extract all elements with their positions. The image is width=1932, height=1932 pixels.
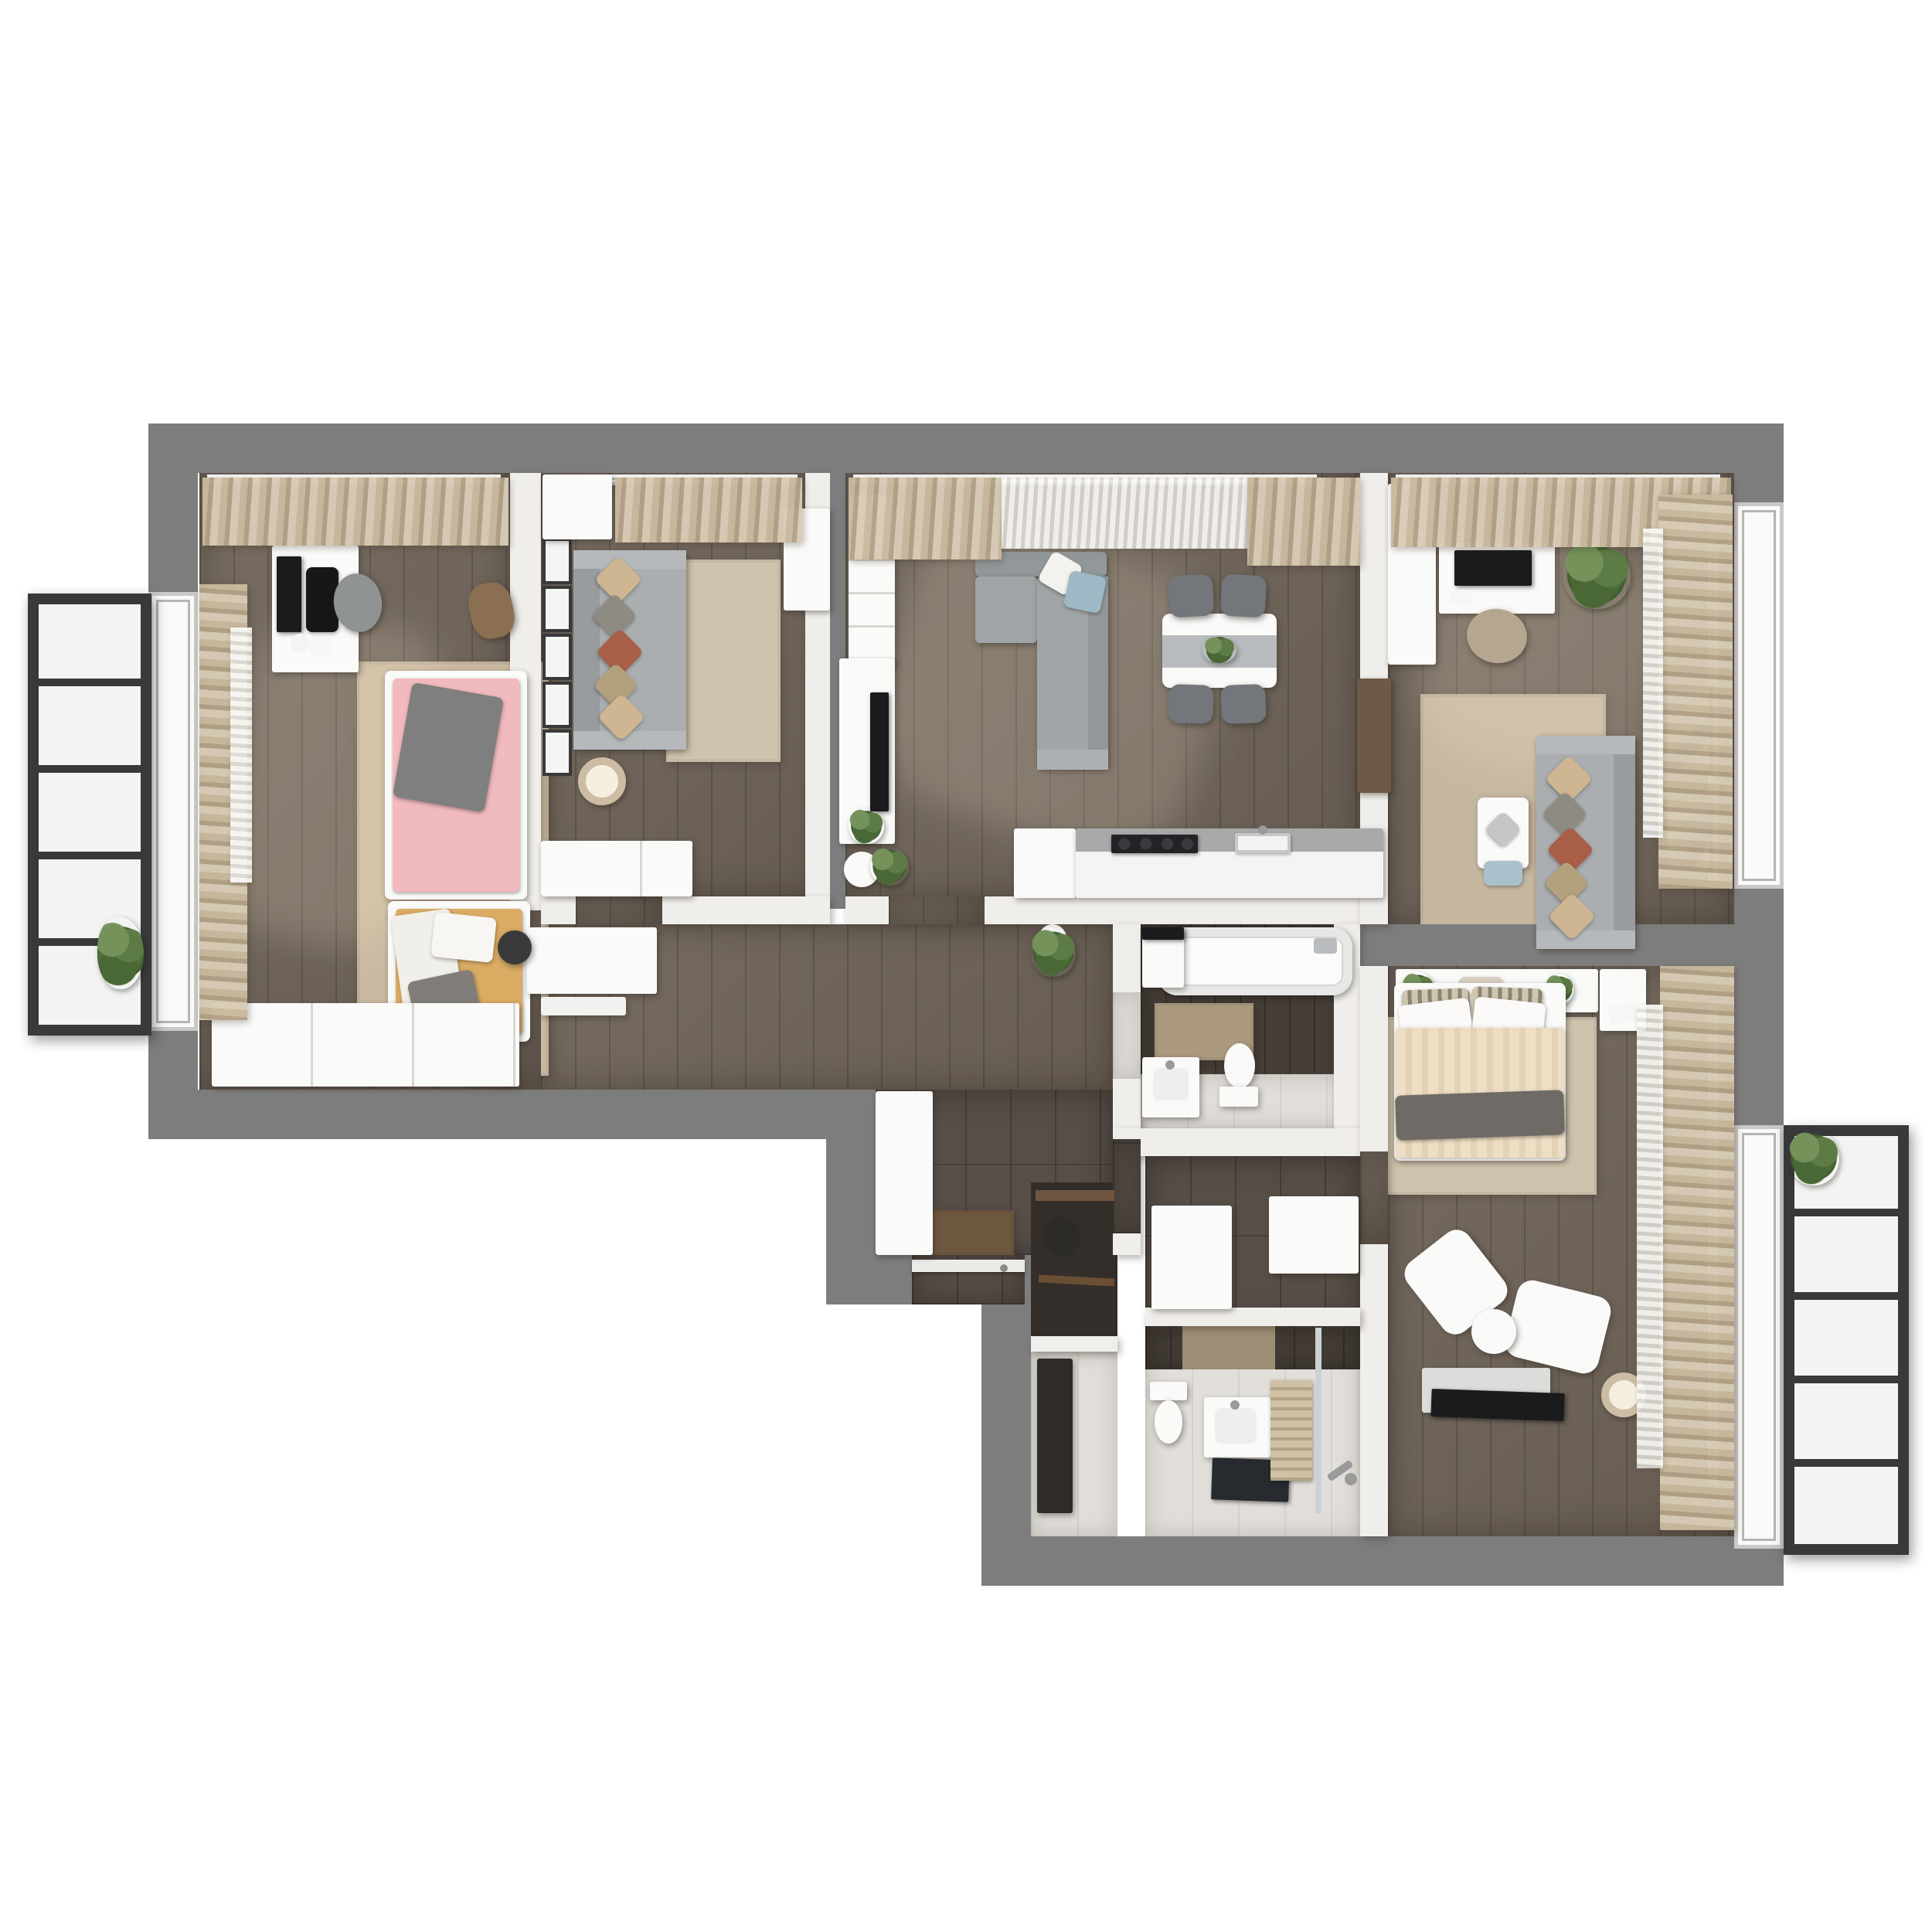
side-table-round xyxy=(1471,1309,1516,1354)
curtain-top-living-right xyxy=(1247,478,1360,566)
throw-blanket xyxy=(1395,1090,1565,1141)
picture-frame-1 xyxy=(546,541,569,581)
vanity-stool xyxy=(498,930,532,964)
bed-pink-blanket xyxy=(393,682,504,813)
door-living-study xyxy=(1357,679,1391,793)
sheer-left-bedroom xyxy=(230,628,252,883)
plant-balcony-left xyxy=(97,917,144,989)
plant-balcony-right xyxy=(1788,1130,1839,1185)
sofa-study-back xyxy=(1614,736,1635,949)
tv-living xyxy=(870,692,889,811)
washbasin-main-faucet xyxy=(1165,1060,1175,1070)
kitchen-faucet xyxy=(1258,825,1267,835)
curtain-top-bedroom-left xyxy=(202,478,509,546)
entry-door-handle xyxy=(1000,1264,1008,1272)
picture-frame-4 xyxy=(546,685,569,725)
balcony-right-mullion-3 xyxy=(1794,1376,1898,1383)
toilet-main-tank xyxy=(1219,1087,1258,1107)
utility-tall-cabinet xyxy=(1037,1359,1073,1513)
kitchen-sink xyxy=(1235,833,1291,853)
wall-outer-bottom-left xyxy=(148,1090,876,1139)
dining-chair-4 xyxy=(1220,684,1267,724)
shelf-blue-study xyxy=(1484,861,1522,886)
sofa-second-room-arm-bottom xyxy=(573,731,686,750)
desk-lamp xyxy=(291,634,309,652)
entry-door-leaf xyxy=(912,1260,1025,1272)
window-right-study xyxy=(1734,502,1784,889)
bed-ochre-pillow xyxy=(430,912,497,963)
sofa-living-arm-bottom xyxy=(1037,750,1108,770)
plant-hall xyxy=(1031,927,1076,977)
door-gap-main-bathroom xyxy=(1113,992,1141,1079)
vanity-second-faucet xyxy=(1230,1400,1240,1410)
plant-tv-console xyxy=(849,808,884,844)
door-gap-living-passage xyxy=(889,896,985,924)
bathtub-faucet xyxy=(1314,938,1337,954)
door-gap-second-room xyxy=(576,896,662,924)
towel-radiator xyxy=(1270,1380,1312,1481)
window-right-balcony xyxy=(1734,1125,1784,1549)
plant-living-floor xyxy=(870,847,909,886)
closet-second-room-top xyxy=(543,474,612,539)
tv-bedroom xyxy=(1430,1389,1564,1421)
balcony-right-mullion-1 xyxy=(1794,1209,1898,1216)
dining-chair-3 xyxy=(1168,684,1214,724)
sofa-living-chaise xyxy=(975,577,1037,643)
toilet-second-bowl xyxy=(1155,1400,1182,1444)
picture-frame-3 xyxy=(546,637,569,677)
balcony-left-mullion-3 xyxy=(39,852,141,859)
wall-outer-top xyxy=(148,423,1784,473)
floor-second-bathroom-beige-patch xyxy=(1182,1326,1275,1369)
vanity-second-bowl xyxy=(1215,1408,1257,1444)
storage-bench-1 xyxy=(1151,1206,1232,1309)
wall-dressing-divider xyxy=(1145,1308,1360,1326)
dining-flowers xyxy=(1202,637,1236,663)
shower-head xyxy=(1345,1473,1357,1485)
balcony-left-mullion-2 xyxy=(39,765,141,773)
storage-bench-2 xyxy=(1269,1196,1359,1274)
wall-main-vertical xyxy=(1360,966,1388,1536)
sheer-top-living xyxy=(1002,478,1247,549)
picture-frame-5 xyxy=(546,733,569,773)
door-gap-bedroom-right xyxy=(1360,1151,1388,1244)
coat-niche-shelf xyxy=(1036,1190,1114,1201)
shower-glass xyxy=(1315,1328,1321,1513)
picture-frame-2 xyxy=(546,589,569,629)
balcony-right xyxy=(1784,1125,1909,1555)
balcony-right-mullion-4 xyxy=(1794,1459,1898,1467)
wall-outer-bottom xyxy=(981,1536,1784,1586)
wall-main-bath-bottom xyxy=(1113,1128,1360,1156)
window-left-balcony xyxy=(148,592,198,1031)
wardrobe-bedroom-left xyxy=(212,1003,519,1087)
door-gap-dressing xyxy=(1113,1139,1141,1233)
wall-niche-divider xyxy=(1031,1336,1117,1352)
balcony-right-mullion-2 xyxy=(1794,1292,1898,1300)
sofa-second-room-arm-top xyxy=(573,550,686,569)
pillow-living-blue xyxy=(1063,570,1107,614)
papers-study xyxy=(1450,590,1473,604)
computer-study xyxy=(1454,550,1532,586)
washing-machine-panel xyxy=(1142,927,1184,940)
vanity-drawer xyxy=(541,997,626,1015)
sofa-study-arm-top xyxy=(1536,736,1635,754)
dining-chair-1 xyxy=(1168,574,1215,618)
pouf-hall xyxy=(1043,1216,1080,1257)
vanity-nook xyxy=(527,927,657,994)
curtain-top-living-left xyxy=(849,478,1002,560)
sheer-right-study xyxy=(1643,529,1663,838)
curtain-right-bedroom xyxy=(1660,966,1734,1530)
dining-chair-2 xyxy=(1220,574,1267,618)
dresser-second-room xyxy=(541,841,692,896)
balcony-left-mullion-1 xyxy=(39,679,141,686)
kitchen-tall-cabinet xyxy=(1014,828,1076,898)
computer-monitor xyxy=(277,556,301,632)
hall-closet xyxy=(876,1091,933,1255)
desk-papers xyxy=(308,637,334,657)
floor-coat-niche xyxy=(1031,1182,1117,1336)
floor-plan xyxy=(0,0,1932,1932)
plant-study xyxy=(1563,541,1631,609)
kitchen-cooktop xyxy=(1111,835,1198,853)
sofa-study-arm-bottom xyxy=(1536,930,1635,949)
curtain-right-study xyxy=(1658,495,1733,889)
washbasin-main-bowl xyxy=(1153,1068,1189,1100)
sheer-right-bedroom xyxy=(1637,1005,1663,1468)
toilet-second-tank xyxy=(1150,1382,1187,1400)
toilet-main-bowl xyxy=(1224,1043,1255,1088)
arc-floor-lamp xyxy=(578,757,626,805)
curtain-top-second-room xyxy=(615,478,802,543)
